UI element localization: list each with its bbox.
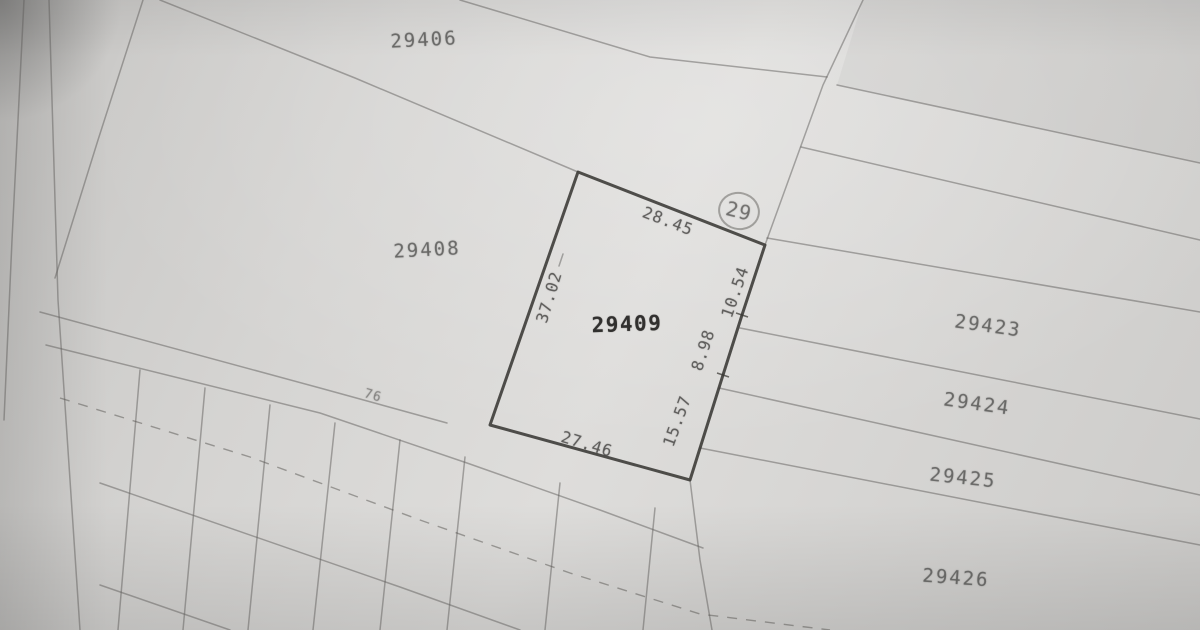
left-boundary-line-1 bbox=[4, 0, 24, 420]
grid-vertical-line-4 bbox=[313, 423, 335, 630]
grid-vertical-line-7 bbox=[545, 483, 560, 630]
top-right-shading bbox=[837, 0, 1200, 163]
main-transverse-line-lower bbox=[690, 480, 712, 630]
grid-vertical-line-3 bbox=[248, 405, 270, 630]
parcel-29406-north-line bbox=[460, 0, 827, 77]
grid-vertical-line-5 bbox=[380, 440, 400, 630]
grid-horizontal-line-1 bbox=[100, 483, 520, 630]
road-line-upper bbox=[40, 312, 447, 423]
parcel-29423-north-line bbox=[767, 238, 1200, 312]
parcel-29426-north-line bbox=[700, 448, 1200, 545]
main-transverse-line-upper bbox=[765, 0, 863, 245]
parcel-label-29408: 29408 bbox=[393, 237, 461, 262]
dimension-tick-37-02 bbox=[559, 254, 563, 266]
subject-parcel-label-29409: 29409 bbox=[591, 311, 663, 337]
right-strip-line-1 bbox=[801, 147, 1200, 240]
parcel-29406-south-line bbox=[160, 0, 578, 172]
dashed-boundary-line bbox=[60, 398, 830, 630]
cadastral-map-scan: 29406 29408 29423 29424 29425 29426 2940… bbox=[0, 0, 1200, 630]
grid-vertical-line-2 bbox=[183, 388, 205, 630]
parcel-label-29426: 29426 bbox=[922, 565, 991, 592]
parcel-label-29406: 29406 bbox=[390, 27, 458, 52]
grid-vertical-line-1 bbox=[118, 370, 140, 630]
left-transverse-line bbox=[55, 0, 143, 278]
grid-vertical-line-6 bbox=[447, 457, 465, 630]
corner-marker-label: 29 bbox=[723, 196, 754, 226]
